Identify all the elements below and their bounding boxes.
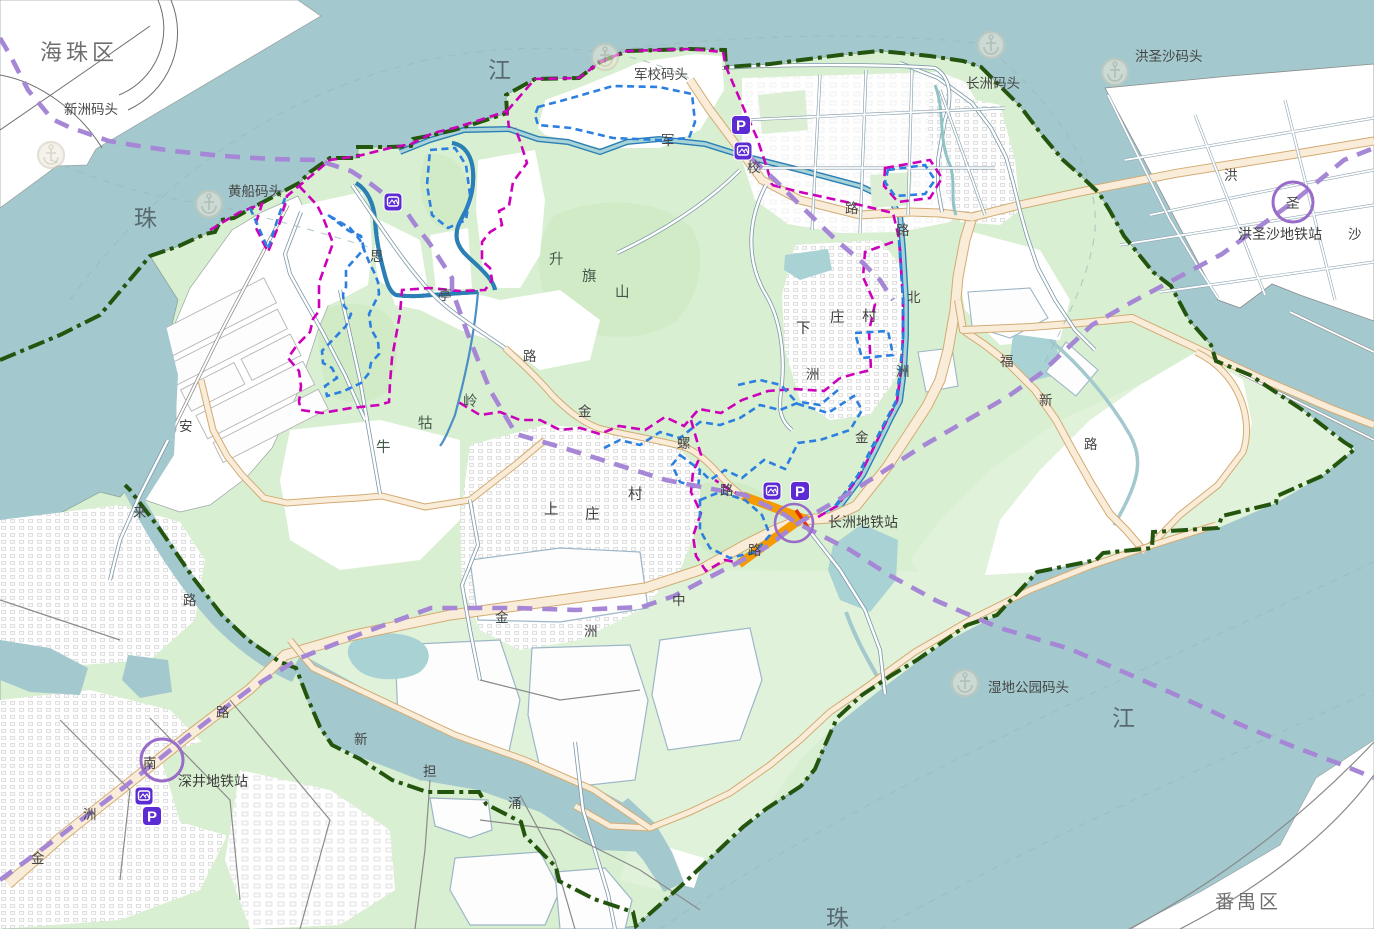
svg-text:洲: 洲 <box>806 367 820 382</box>
svg-text:江: 江 <box>1112 705 1135 731</box>
svg-text:军校码头: 军校码头 <box>634 66 688 82</box>
svg-text:南: 南 <box>143 756 157 771</box>
svg-text:新: 新 <box>354 732 368 747</box>
svg-text:福: 福 <box>1000 354 1014 369</box>
svg-text:北: 北 <box>907 290 921 305</box>
svg-text:路: 路 <box>183 593 197 608</box>
svg-text:螺: 螺 <box>677 436 691 451</box>
svg-text:金: 金 <box>578 404 592 419</box>
svg-text:亭: 亭 <box>438 287 452 303</box>
svg-text:长洲地铁站: 长洲地铁站 <box>828 514 898 530</box>
svg-text:路: 路 <box>216 705 230 720</box>
svg-text:洪: 洪 <box>1224 168 1238 183</box>
svg-text:路: 路 <box>845 201 859 216</box>
svg-text:上: 上 <box>544 501 559 518</box>
svg-text:校: 校 <box>747 159 761 175</box>
svg-text:珠: 珠 <box>826 905 849 929</box>
svg-text:洲: 洲 <box>83 807 97 822</box>
svg-text:新洲码头: 新洲码头 <box>64 102 118 117</box>
svg-text:思: 思 <box>370 249 384 264</box>
svg-text:珠: 珠 <box>134 205 157 231</box>
svg-text:洪圣沙码头: 洪圣沙码头 <box>1135 49 1203 64</box>
svg-text:岭: 岭 <box>463 393 478 410</box>
svg-text:路: 路 <box>748 543 762 558</box>
svg-text:新: 新 <box>1039 393 1053 408</box>
svg-text:安: 安 <box>179 419 193 434</box>
svg-text:深井地铁站: 深井地铁站 <box>178 773 248 789</box>
svg-text:路: 路 <box>523 349 537 364</box>
svg-text:金: 金 <box>31 851 45 866</box>
svg-text:担: 担 <box>423 764 437 779</box>
svg-text:路: 路 <box>896 223 910 238</box>
svg-text:旗: 旗 <box>582 268 597 285</box>
svg-text:牛: 牛 <box>376 439 391 456</box>
svg-text:升: 升 <box>549 251 564 268</box>
svg-text:金: 金 <box>855 430 869 445</box>
svg-text:路: 路 <box>720 483 734 498</box>
svg-text:村: 村 <box>862 308 877 325</box>
svg-text:村: 村 <box>628 486 643 503</box>
svg-text:长洲码头: 长洲码头 <box>966 76 1020 91</box>
svg-text:中: 中 <box>672 593 686 608</box>
svg-text:来: 来 <box>133 505 147 520</box>
svg-text:沙: 沙 <box>1348 227 1362 242</box>
svg-text:圣: 圣 <box>1286 196 1300 211</box>
svg-text:湿地公园码头: 湿地公园码头 <box>988 680 1069 695</box>
svg-text:番禺区: 番禺区 <box>1215 891 1281 913</box>
svg-text:洲: 洲 <box>584 624 598 639</box>
svg-text:海珠区: 海珠区 <box>40 40 118 65</box>
svg-text:路: 路 <box>1084 437 1098 452</box>
svg-text:黄船码头: 黄船码头 <box>228 184 282 199</box>
svg-text:江: 江 <box>488 57 511 83</box>
svg-text:金: 金 <box>495 610 509 625</box>
svg-text:下: 下 <box>796 321 811 337</box>
svg-text:山: 山 <box>615 284 630 301</box>
svg-text:军: 军 <box>661 133 675 148</box>
svg-text:洪圣沙地铁站: 洪圣沙地铁站 <box>1238 226 1322 242</box>
svg-text:涌: 涌 <box>508 796 522 811</box>
svg-text:洲: 洲 <box>896 364 910 379</box>
svg-text:牯: 牯 <box>418 415 433 432</box>
svg-text:庄: 庄 <box>585 505 600 523</box>
svg-text:庄: 庄 <box>830 308 845 326</box>
